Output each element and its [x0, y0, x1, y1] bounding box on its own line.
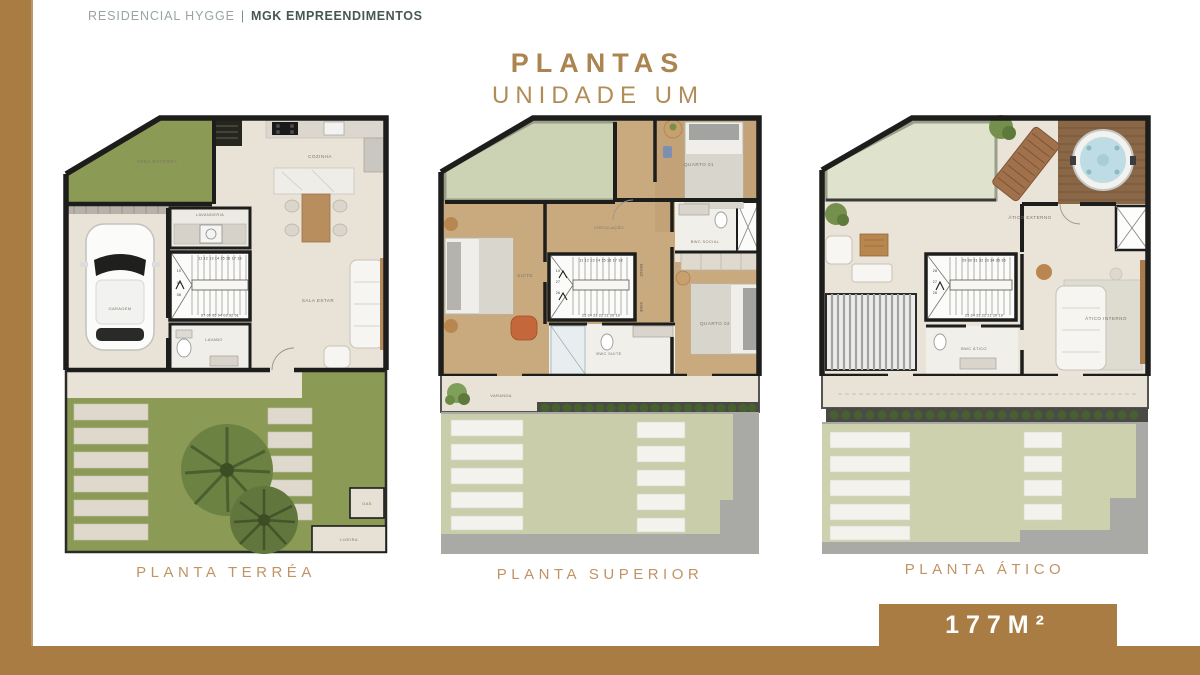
- vanity-counter: [960, 358, 996, 369]
- room-label-atico-interno: ÁTICO INTERNO: [1085, 315, 1127, 321]
- room-label-bwc-suite: BWC SUITE: [596, 351, 621, 356]
- room-label-lixeira: LIXEIRA: [340, 537, 358, 542]
- chair-icon: [333, 224, 347, 236]
- room-label-sala-estar: SALA ESTAR: [302, 298, 334, 303]
- room-label-quarto01: QUARTO 01: [684, 162, 714, 167]
- residencial-name: RESIDENCIAL HYGGE: [88, 9, 235, 23]
- toilet-icon: [934, 334, 946, 350]
- stair-number: 26: [556, 291, 560, 295]
- stair-number: 09: [177, 281, 181, 285]
- pergola-striped-roof: [826, 294, 916, 370]
- washer-icon: [200, 225, 222, 243]
- floor-plan-terrea: 11 12 13 14 15 16 17 18 10 09 08 07 06 0…: [62, 112, 390, 559]
- dining-table: [302, 194, 330, 242]
- varanda-floor: [822, 376, 1148, 408]
- room-label-lavabo: LAVABO: [205, 337, 223, 342]
- caption-planta-atico: PLANTA ÁTICO: [818, 561, 1152, 578]
- floor-plan-superior: 11 12 13 14 15 16 17 18 10 27 26 25 24 2…: [437, 112, 763, 559]
- stairs-atico: 29 30 31 32 33 34 35 36 28 27 26 25 24 2…: [926, 254, 1024, 320]
- car-mirror: [80, 262, 88, 267]
- caption-planta-terrea: PLANTA TERRÉA: [62, 564, 390, 581]
- brand-line: RESIDENCIAL HYGGE|MGK EMPREENDIMENTOS: [88, 9, 423, 23]
- utility-box: [212, 120, 242, 146]
- sink-counter: [210, 356, 238, 366]
- vanity-counter: [633, 326, 673, 337]
- stair-numbers-bottom: 25 24 23 22 21 20 19: [965, 314, 1003, 318]
- car-top-view: [80, 224, 160, 350]
- burner: [290, 124, 294, 128]
- side-table: [1110, 268, 1122, 280]
- brand-divider: |: [241, 9, 245, 23]
- chair-icon: [333, 200, 347, 212]
- left-accent-bar: [0, 0, 33, 675]
- stair-numbers-top: 11 12 13 14 15 16 17 18: [579, 259, 622, 263]
- armchair-icon: [826, 236, 852, 264]
- room-label-suite: SUITE: [517, 273, 533, 278]
- kitchen-sink-icon: [324, 122, 344, 135]
- orange-armchair-icon: [511, 316, 537, 340]
- burner: [276, 124, 280, 128]
- toilet-tank: [176, 330, 192, 338]
- burner: [276, 130, 280, 134]
- vanity-counter: [679, 204, 709, 215]
- car-mirror: [152, 262, 160, 267]
- car-roof: [96, 280, 144, 324]
- closet-strip: [681, 252, 759, 270]
- stair-landing: [192, 280, 248, 290]
- room-label-varanda: VARANDA: [490, 393, 512, 398]
- title-line-1: PLANTAS: [398, 48, 798, 79]
- room-label-cozinha: COZINHA: [308, 154, 332, 159]
- area-badge: 177M²: [879, 604, 1117, 646]
- chair-icon: [285, 200, 299, 212]
- stair-number: 27: [933, 280, 937, 284]
- room-label-quarto02: QUARTO 02: [700, 321, 730, 326]
- wood-table: [860, 234, 888, 256]
- stair-sobe-label: SOBE: [639, 302, 643, 313]
- bench-icon: [852, 264, 892, 282]
- room-label-garagem: GARAGEM: [109, 306, 132, 311]
- cooktop-icon: [272, 122, 298, 135]
- roof-terrace: [445, 122, 615, 200]
- room-label-lavanderia: LAVANDERIA: [196, 212, 224, 217]
- room-label-circulacao: CIRCULAÇÃO: [594, 225, 624, 230]
- stair-numbers-top: 29 30 31 32 33 34 35 36: [962, 259, 1006, 263]
- stairs-superior: 11 12 13 14 15 16 17 18 10 27 26 25 24 2…: [549, 254, 643, 320]
- wood-pouf: [1036, 264, 1052, 280]
- terrace-green: [826, 122, 996, 200]
- bottom-accent-bar: [0, 646, 1200, 675]
- room-label-atico-externo: ÁTICO EXTERNO: [1008, 214, 1051, 220]
- floor-plan-terrea-drawing: 11 12 13 14 15 16 17 18 10 09 08 07 06 0…: [62, 112, 390, 559]
- room-label-area-externa: AREA EXTERNA: [137, 159, 178, 164]
- burner: [290, 130, 294, 134]
- stair-landing: [573, 280, 629, 290]
- garden-grass-right: [302, 372, 386, 402]
- armchair-icon: [324, 346, 350, 368]
- stair-number: 28: [933, 269, 937, 273]
- stair-number: 27: [556, 280, 560, 284]
- floor-plan-atico: 29 30 31 32 33 34 35 36 28 27 26 25 24 2…: [818, 112, 1152, 559]
- room-label-bwc-atico: BWC ÁTICO: [961, 346, 987, 351]
- stair-numbers-bottom: 07 06 05 04 03 02 01: [201, 314, 239, 318]
- caption-planta-superior: PLANTA SUPERIOR: [437, 566, 763, 583]
- stair-number: 08: [177, 293, 181, 297]
- car-rear-window: [96, 328, 144, 341]
- toilet-icon: [177, 339, 191, 357]
- stair-number: 26: [933, 291, 937, 295]
- sofa-icon: [1056, 286, 1106, 370]
- title-line-2: UNIDADE UM: [398, 82, 798, 110]
- chair-icon: [285, 224, 299, 236]
- stair-numbers-bottom: 25 24 23 22 21 20 19: [582, 314, 620, 318]
- stair-numbers-top: 11 12 13 14 15 16 17 18: [198, 257, 241, 261]
- toilet-icon: [601, 334, 613, 350]
- hall-wood: [615, 118, 659, 202]
- stair-landing: [950, 280, 1012, 290]
- company-name: MGK EMPREENDIMENTOS: [251, 9, 423, 23]
- palm-tree-icon: [230, 486, 298, 554]
- stair-desce-label: DESCE: [639, 264, 643, 277]
- stair-number: 10: [177, 269, 181, 273]
- room-label-bwc-social: BWC SOCIAL: [691, 239, 720, 244]
- stair-number: 10: [556, 269, 560, 273]
- floor-plan-superior-drawing: 11 12 13 14 15 16 17 18 10 27 26 25 24 2…: [437, 112, 763, 559]
- room-label-gas: GAS: [362, 501, 372, 506]
- fridge-icon: [364, 138, 386, 172]
- stairs-terrea: 11 12 13 14 15 16 17 18 10 09 08 07 06 0…: [170, 252, 250, 320]
- toilet-icon: [715, 212, 727, 228]
- page-title: PLANTAS UNIDADE UM: [398, 48, 798, 110]
- floor-plan-atico-drawing: 29 30 31 32 33 34 35 36 28 27 26 25 24 2…: [818, 112, 1152, 559]
- plantas-slide: { "header": { "brand": "RESIDENCIAL HYGG…: [0, 0, 1200, 675]
